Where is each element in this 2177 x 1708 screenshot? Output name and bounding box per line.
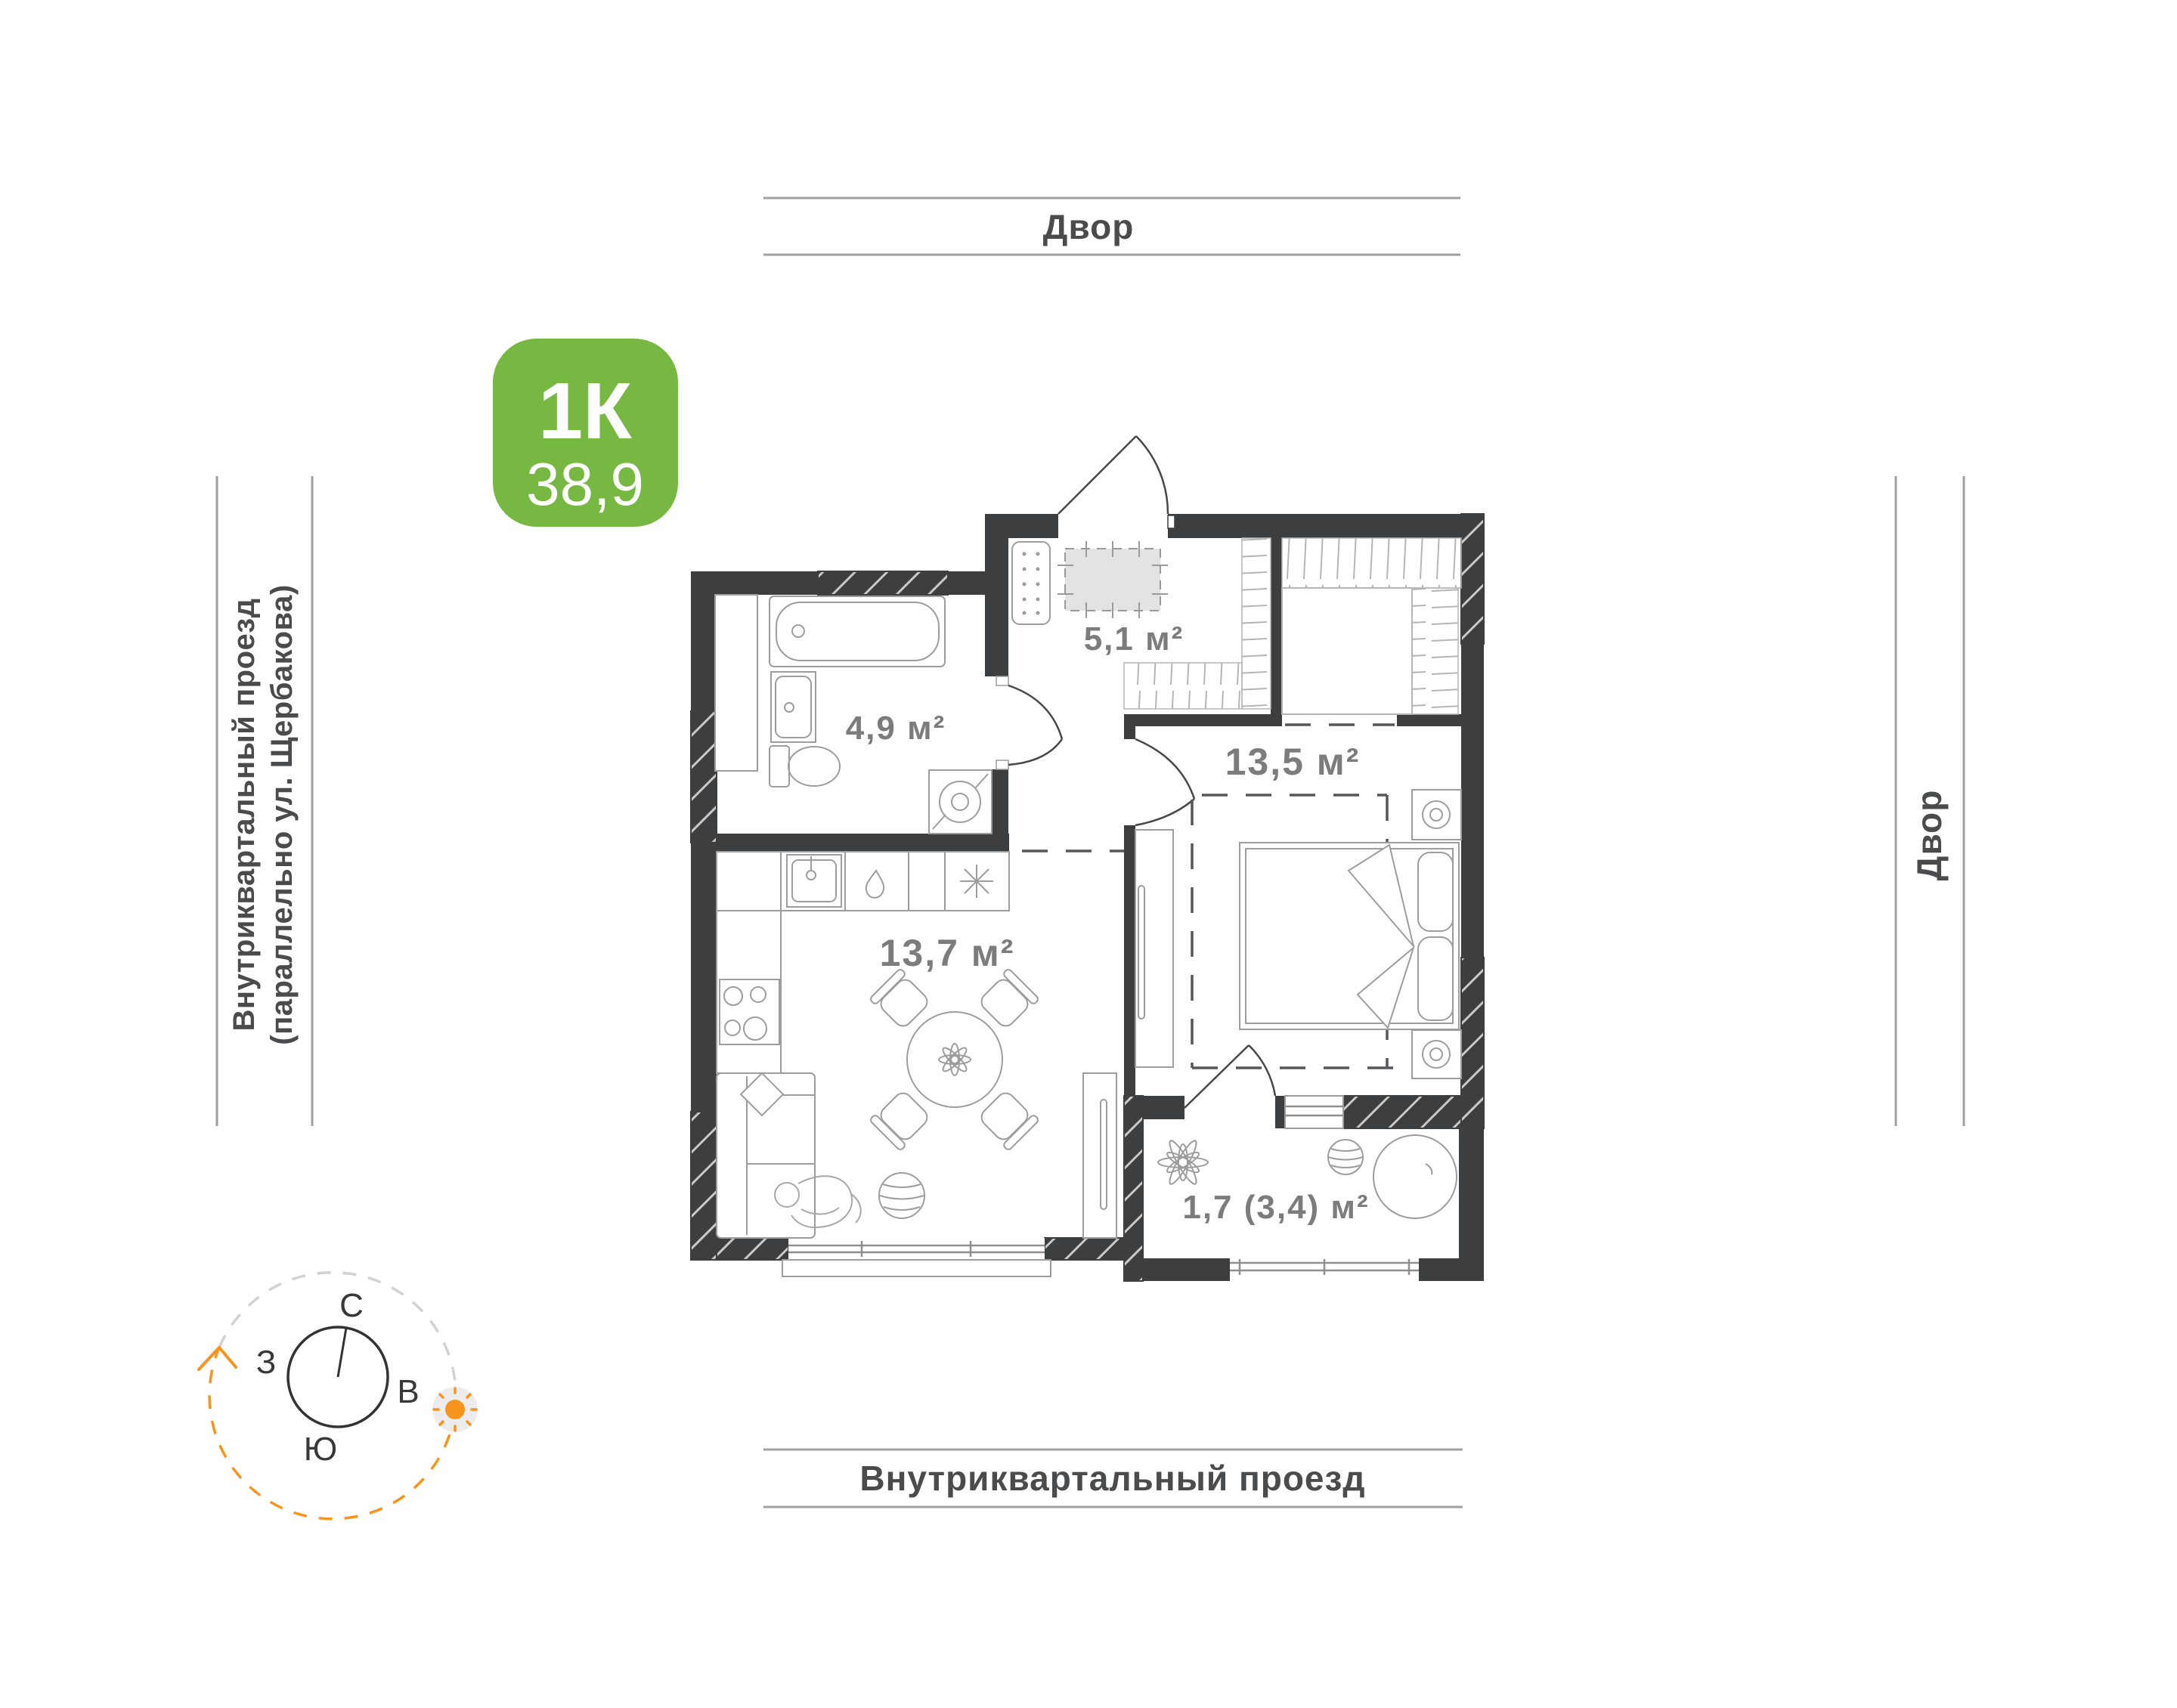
bedroom-closet-side (1412, 588, 1458, 714)
badge-area-value: 38,9 (526, 450, 644, 518)
window-sill (782, 1260, 1051, 1276)
bedroom-closet-inner (1282, 588, 1412, 714)
room-label-bedroom: 13,5 м² (1225, 741, 1361, 783)
sofa (717, 1073, 815, 1238)
shoe-cabinet (1012, 542, 1050, 624)
pillow (1418, 852, 1453, 931)
compass-east: В (397, 1373, 419, 1410)
bathroom-sink (771, 672, 816, 742)
kitchen-sink (787, 855, 841, 907)
room-label-bathroom: 4,9 м² (846, 710, 946, 747)
bedroom-dresser (1135, 830, 1173, 1067)
street-label-left-line1: Внутриквартальный проезд (228, 598, 261, 1031)
shaft-box (1058, 541, 1168, 618)
bedroom-balcony-window (1285, 1096, 1343, 1128)
ball-decor (1328, 1140, 1363, 1174)
toilet (770, 746, 840, 787)
balcony-table (1373, 1135, 1457, 1218)
compass-south: Ю (304, 1431, 337, 1468)
sun-icon (432, 1387, 478, 1432)
bathtub (770, 596, 945, 667)
hall-closet-bottom (1124, 663, 1242, 709)
pillow (1418, 937, 1453, 1020)
street-label-left-line2: (параллельно ул. Щербакова) (265, 584, 299, 1044)
bath-cabinet (715, 595, 757, 771)
living-tv-cabinet (1083, 1073, 1116, 1238)
living-room-window (782, 1238, 1051, 1276)
street-label-bottom: Внутриквартальный проезд (859, 1459, 1365, 1498)
compass-west: З (256, 1344, 277, 1381)
floorplan-page: Двор Внутриквартальный проезд Внутриквар… (0, 0, 2177, 1708)
room-label-balcony: 1,7 (3,4) м² (1182, 1189, 1369, 1226)
street-label-top: Двор (1043, 207, 1135, 246)
tv-icon (1101, 1100, 1107, 1209)
room-label-hallway: 5,1 м² (1084, 620, 1184, 658)
hall-closet-side (1242, 538, 1271, 709)
street-label-right: Двор (1909, 790, 1949, 881)
washing-machine (929, 770, 992, 834)
ball-decor (879, 1173, 924, 1218)
apartment-badge: 1К 38,9 (493, 339, 678, 527)
compass-north: С (339, 1287, 364, 1324)
nightstand (1412, 1030, 1461, 1078)
bedroom-closet-top (1282, 538, 1461, 588)
nightstand (1412, 790, 1461, 840)
double-bed (1240, 843, 1459, 1029)
badge-room-type: 1К (538, 367, 632, 456)
tv-icon (1138, 886, 1144, 1019)
fridge-icon (960, 865, 993, 898)
room-label-kitchen-living: 13,7 м² (880, 932, 1015, 974)
